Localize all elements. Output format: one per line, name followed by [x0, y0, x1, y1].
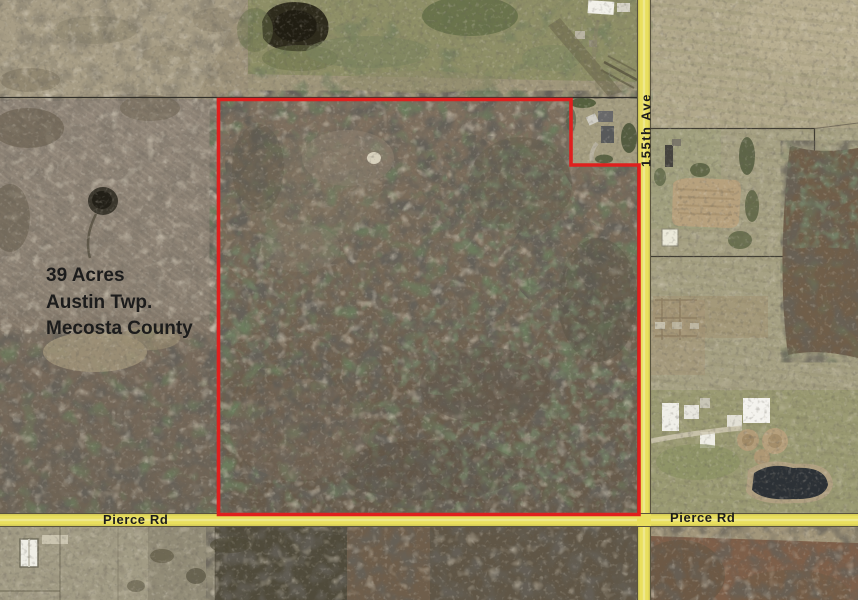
- svg-text:Mecosta County: Mecosta County: [46, 318, 193, 339]
- svg-text:155th Ave: 155th Ave: [639, 93, 654, 167]
- svg-text:Austin Twp.: Austin Twp.: [46, 292, 152, 313]
- svg-text:Pierce Rd: Pierce Rd: [670, 510, 735, 525]
- svg-text:Pierce Rd: Pierce Rd: [103, 512, 168, 527]
- svg-text:39 Acres: 39 Acres: [46, 265, 125, 286]
